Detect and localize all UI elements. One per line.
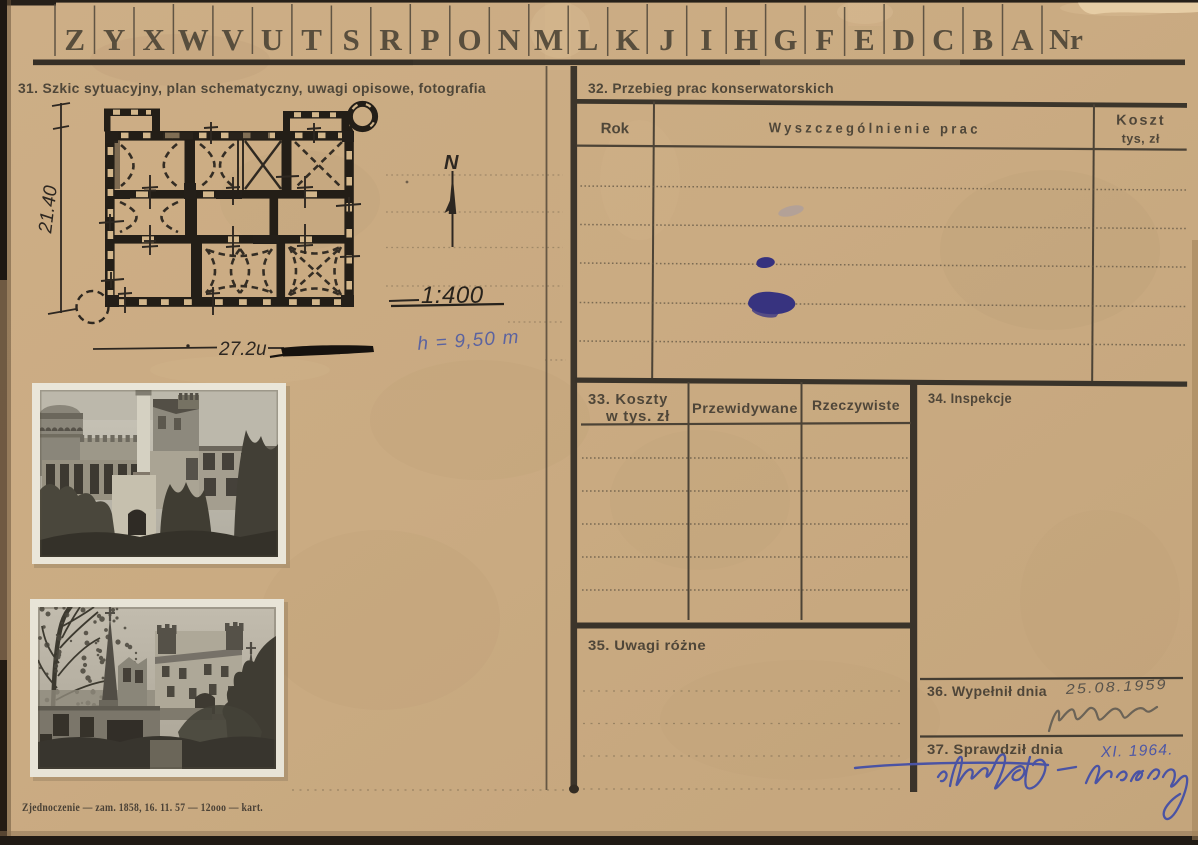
svg-text:37. Sprawdził dnia: 37. Sprawdził dnia: [927, 742, 1063, 757]
svg-text:Z: Z: [64, 22, 85, 57]
svg-text:34. Inspekcje: 34. Inspekcje: [928, 391, 1012, 406]
svg-text:B: B: [972, 22, 993, 57]
svg-text:P: P: [421, 22, 440, 57]
svg-text:N: N: [498, 22, 520, 57]
svg-text:Przewidywane: Przewidywane: [692, 400, 798, 416]
svg-text:S: S: [342, 22, 359, 57]
svg-text:F: F: [815, 22, 834, 57]
svg-text:X: X: [143, 22, 166, 57]
svg-text:Rok: Rok: [601, 120, 630, 137]
svg-text:U: U: [261, 22, 283, 57]
svg-text:K: K: [615, 22, 639, 57]
svg-text:Rzeczywiste: Rzeczywiste: [812, 397, 900, 413]
svg-text:Y: Y: [103, 22, 125, 57]
svg-text:Koszt: Koszt: [1116, 113, 1166, 129]
svg-text:C: C: [932, 22, 954, 57]
svg-text:w tys. zł: w tys. zł: [605, 409, 670, 425]
svg-text:N: N: [444, 152, 459, 174]
svg-text:27.2u: 27.2u: [218, 339, 267, 360]
svg-text:XI. 1964.: XI. 1964.: [1100, 741, 1174, 761]
svg-text:I: I: [700, 22, 712, 57]
svg-text:O: O: [457, 22, 481, 57]
svg-text:M: M: [534, 22, 563, 57]
svg-text:36. Wypełnił dnia: 36. Wypełnił dnia: [927, 684, 1047, 699]
svg-text:Zjednoczenie — zam. 1858, 16.: Zjednoczenie — zam. 1858, 16. 11. 57 — 1…: [22, 800, 263, 814]
svg-text:A: A: [1011, 22, 1034, 57]
svg-text:W: W: [178, 22, 209, 57]
svg-text:H: H: [734, 22, 758, 57]
svg-text:L: L: [578, 22, 599, 57]
svg-text:G: G: [773, 22, 797, 57]
svg-text:32. Przebieg prac konserwators: 32. Przebieg prac konserwatorskich: [588, 81, 834, 96]
svg-text:tys, zł: tys, zł: [1122, 132, 1160, 146]
svg-text:R: R: [379, 22, 402, 57]
svg-text:T: T: [301, 22, 322, 57]
svg-text:V: V: [222, 22, 245, 57]
svg-text:35. Uwagi różne: 35. Uwagi różne: [588, 638, 706, 653]
svg-text:Wyszczególnienie prac: Wyszczególnienie prac: [769, 119, 981, 136]
svg-text:31. Szkic sytuacyjny, plan sch: 31. Szkic sytuacyjny, plan schematyczny,…: [18, 81, 486, 96]
svg-text:E: E: [854, 22, 875, 57]
svg-text:Nr: Nr: [1049, 24, 1083, 56]
svg-text:D: D: [893, 22, 915, 57]
svg-text:J: J: [659, 22, 675, 57]
svg-text:33. Koszty: 33. Koszty: [588, 392, 668, 408]
